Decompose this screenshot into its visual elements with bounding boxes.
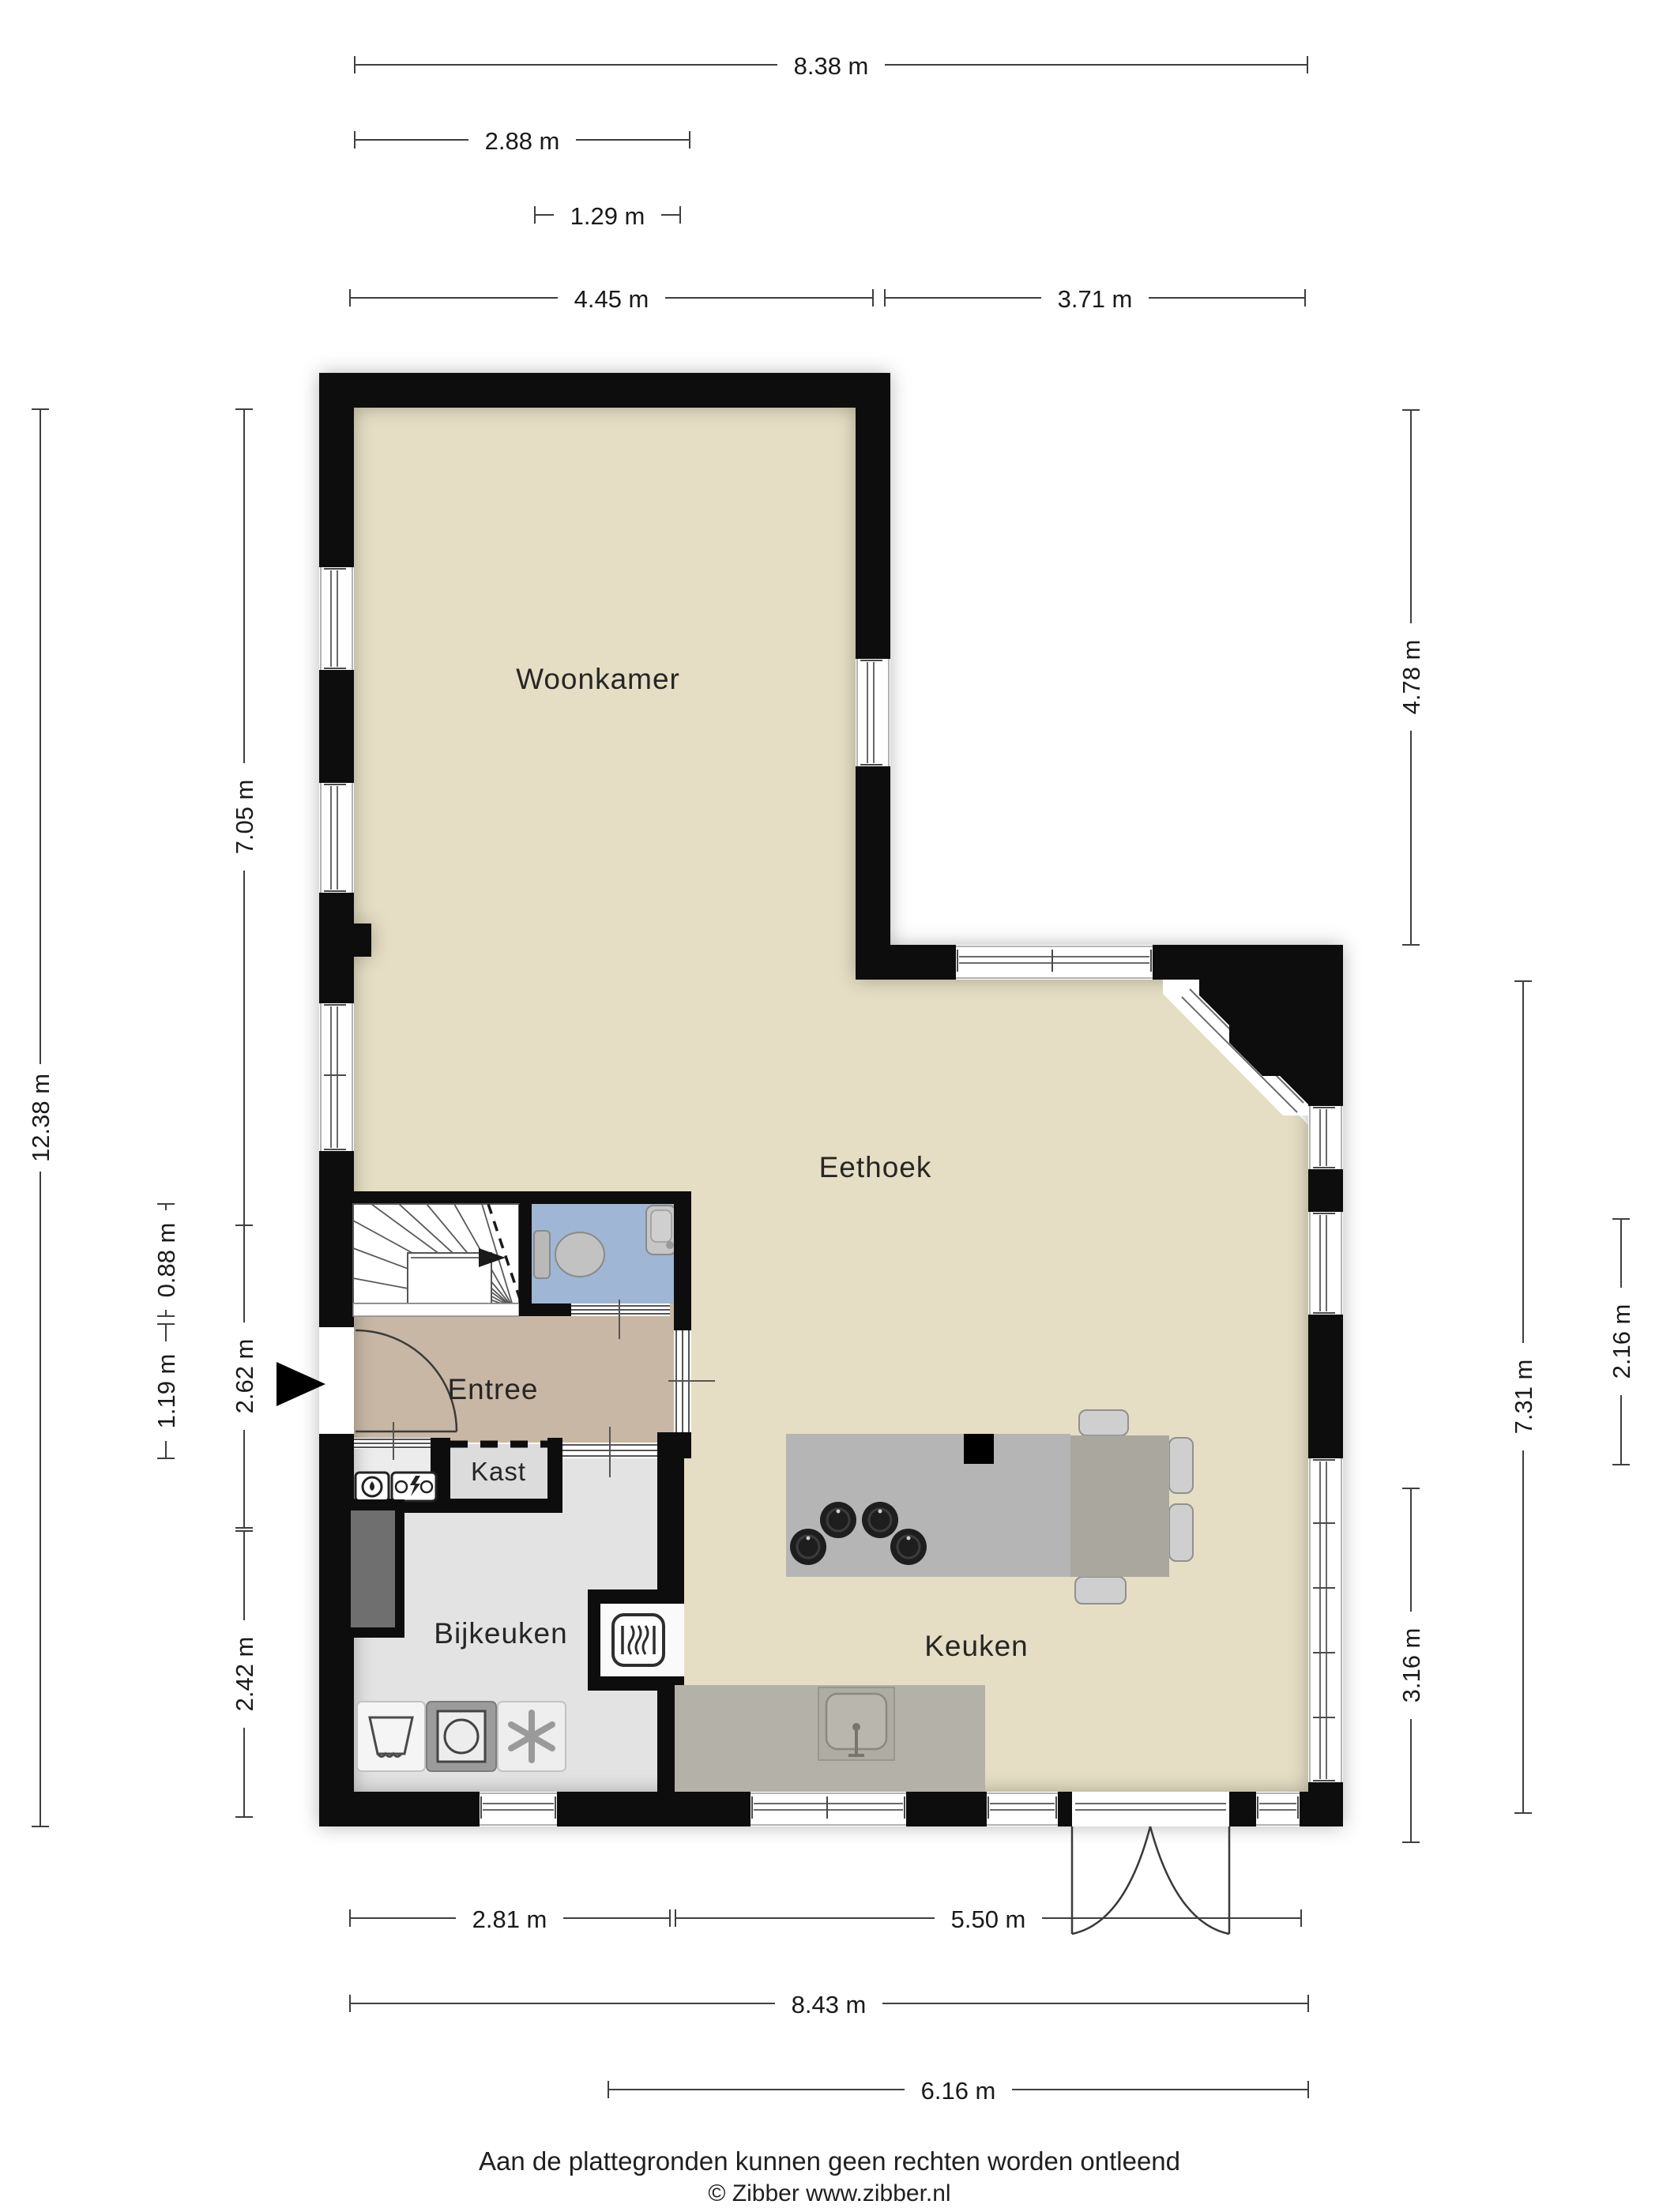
- dim-top-445: 4.45 m: [574, 285, 649, 313]
- front-door-opening: [319, 1327, 354, 1434]
- chair-right-2: [1169, 1504, 1193, 1561]
- room-label-eethoek: Eethoek: [819, 1151, 932, 1183]
- chair-bottom: [1075, 1577, 1126, 1604]
- wall-toilet-door-side: [532, 1303, 571, 1316]
- dining-table: [1070, 1435, 1169, 1577]
- dim-left-1238: 12.38 m: [27, 1074, 55, 1162]
- dim-right-731: 7.31 m: [1510, 1360, 1537, 1435]
- dim-bottom-550: 5.50 m: [951, 1905, 1026, 1933]
- island-sink-block: [964, 1434, 994, 1464]
- window-left-1: [319, 567, 354, 670]
- toilet-icon: [534, 1231, 604, 1278]
- dim-left-705: 7.05 m: [231, 780, 258, 855]
- freezer: [498, 1702, 566, 1771]
- dim-top-288: 2.88 m: [485, 127, 560, 155]
- wall-nub-left: [354, 924, 371, 957]
- wall-stairs-toilet: [519, 1204, 532, 1316]
- room-label-bijkeuken: Bijkeuken: [434, 1617, 567, 1650]
- room-label-entree: Entree: [447, 1373, 538, 1405]
- footer-copyright: © Zibber www.zibber.nl: [708, 2180, 950, 2206]
- dim-right-316: 3.16 m: [1398, 1628, 1425, 1703]
- hand-basin-icon: [646, 1206, 676, 1255]
- wall-entree-east-top: [674, 1191, 691, 1330]
- refrigerator-cabinet: [341, 1499, 404, 1638]
- window-keuken-bottom-3: [1256, 1792, 1300, 1826]
- kitchen-island: [786, 1434, 1070, 1577]
- window-left-3: [319, 1003, 354, 1151]
- stairs-threshold: [353, 1303, 519, 1316]
- window-right-1: [1308, 1106, 1343, 1169]
- dim-right-478: 4.78 m: [1398, 640, 1425, 715]
- wall-top: [319, 373, 890, 408]
- washing-machine: [427, 1702, 496, 1771]
- boiler-niche: [588, 1589, 684, 1691]
- water-meter-icon: [355, 1473, 389, 1501]
- room-label-keuken: Keuken: [924, 1630, 1029, 1662]
- dim-left-262: 2.62 m: [231, 1339, 258, 1414]
- dim-right-216: 2.16 m: [1608, 1304, 1635, 1379]
- dim-bottom-616: 6.16 m: [921, 2077, 996, 2105]
- dim-left-119: 1.19 m: [152, 1354, 180, 1429]
- dim-bottom-843: 8.43 m: [792, 1991, 867, 2018]
- floorplan-canvas: 8.38 m 2.88 m 1.29 m 4.45 m 3.71 m 2.81 …: [0, 0, 1659, 2212]
- stairs: [353, 1204, 520, 1316]
- window-woonkamer-right: [856, 659, 890, 766]
- utility-appliances: [357, 1702, 566, 1771]
- chair-top: [1079, 1410, 1128, 1435]
- window-right-3: [1308, 1458, 1343, 1782]
- room-label-woonkamer: Woonkamer: [516, 663, 680, 695]
- kitchen-counter: [675, 1685, 985, 1792]
- entrance-arrow-icon: [276, 1362, 325, 1406]
- extractor-unit: [357, 1702, 425, 1771]
- window-left-2: [319, 783, 354, 893]
- central-heating-boiler-icon: [613, 1615, 664, 1665]
- window-eethoek-top: [956, 945, 1153, 980]
- dim-bottom-281: 2.81 m: [472, 1905, 547, 1933]
- window-right-2: [1308, 1212, 1343, 1315]
- footer-disclaimer: Aan de plattegronden kunnen geen rechten…: [479, 2146, 1180, 2176]
- floors: [354, 408, 1308, 1792]
- meter-icons: [355, 1473, 436, 1501]
- french-doors: [1072, 1792, 1229, 1934]
- room-label-kast: Kast: [471, 1457, 526, 1486]
- dim-top-371: 3.71 m: [1058, 285, 1133, 313]
- dim-left-242: 2.42 m: [231, 1637, 258, 1712]
- dim-top-838: 8.38 m: [794, 52, 869, 80]
- dim-top-129: 1.29 m: [570, 202, 645, 230]
- window-keuken-bottom-2: [987, 1792, 1058, 1826]
- wall-hall-top: [319, 1191, 691, 1204]
- wall-bijkeuken-keuken-top: [657, 1432, 684, 1589]
- kitchen-sink: [818, 1687, 894, 1760]
- window-bijkeuken-bottom: [480, 1792, 557, 1826]
- chair-right-1: [1169, 1438, 1193, 1493]
- footer: Aan de plattegronden kunnen geen rechten…: [479, 2146, 1180, 2206]
- dim-left-088: 0.88 m: [152, 1223, 180, 1298]
- electric-meter-icon: [392, 1473, 436, 1501]
- window-keuken-bottom-1: [750, 1792, 906, 1826]
